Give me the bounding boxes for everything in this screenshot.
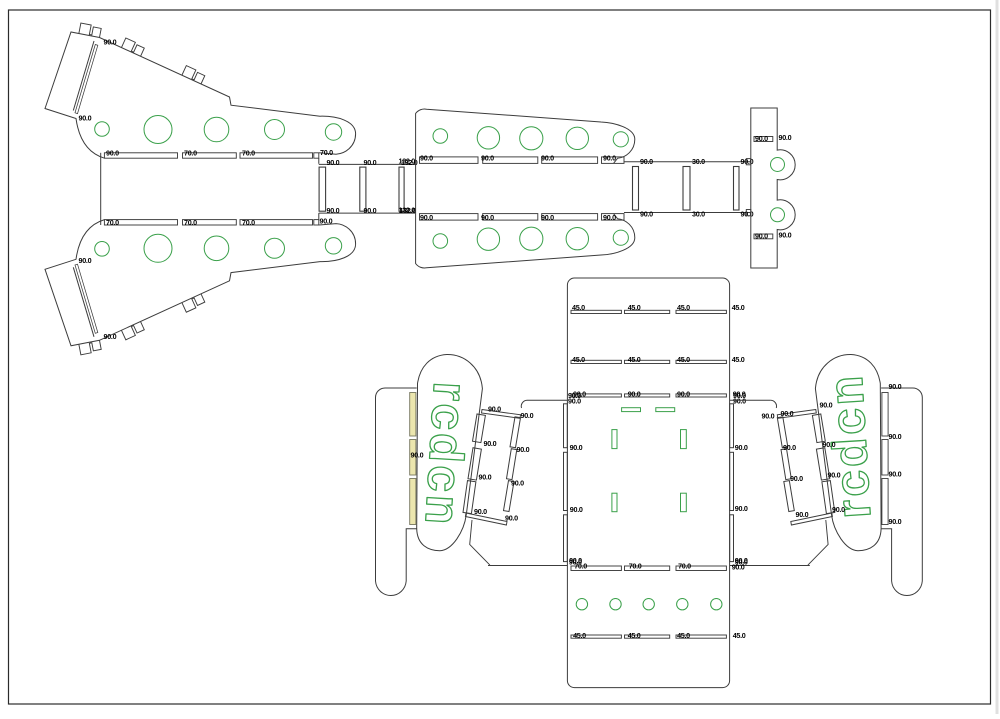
svg-text:90.0: 90.0	[104, 38, 117, 47]
svg-text:90.0: 90.0	[484, 439, 497, 448]
svg-text:70.0: 70.0	[678, 562, 691, 571]
svg-text:90.0: 90.0	[783, 443, 796, 452]
svg-text:rcdcn: rcdcn	[414, 380, 476, 529]
svg-text:90.0: 90.0	[735, 504, 748, 513]
svg-text:70.0: 70.0	[106, 218, 119, 227]
svg-text:45.0: 45.0	[628, 631, 641, 640]
svg-text:45.0: 45.0	[732, 303, 745, 312]
svg-text:132.0: 132.0	[399, 156, 416, 165]
svg-text:45.0: 45.0	[732, 355, 745, 364]
svg-text:90.0: 90.0	[735, 556, 748, 565]
svg-text:90.0: 90.0	[511, 479, 524, 488]
svg-text:90.0: 90.0	[481, 153, 494, 162]
svg-text:90.0: 90.0	[796, 510, 809, 519]
svg-text:90.0: 90.0	[779, 230, 792, 239]
svg-text:90.0: 90.0	[640, 157, 653, 166]
svg-text:70.0: 70.0	[184, 149, 197, 158]
svg-text:90.0: 90.0	[677, 390, 690, 399]
svg-text:70.0: 70.0	[184, 218, 197, 227]
svg-text:90.0: 90.0	[733, 391, 746, 400]
svg-text:90.0: 90.0	[106, 149, 119, 158]
svg-text:90.0: 90.0	[364, 158, 377, 167]
svg-text:90.0: 90.0	[541, 153, 554, 162]
svg-text:90.0: 90.0	[420, 213, 433, 222]
svg-text:90.0: 90.0	[832, 505, 845, 514]
svg-text:45.0: 45.0	[733, 631, 746, 640]
svg-text:90.0: 90.0	[411, 451, 424, 460]
svg-text:90.0: 90.0	[517, 445, 530, 454]
svg-text:70.0: 70.0	[320, 148, 333, 157]
svg-text:45.0: 45.0	[573, 631, 586, 640]
svg-text:90.0: 90.0	[364, 206, 377, 215]
svg-text:90.0: 90.0	[628, 390, 641, 399]
svg-text:70.0: 70.0	[242, 149, 255, 158]
svg-text:30.0: 30.0	[692, 210, 705, 219]
svg-text:90.0: 90.0	[889, 470, 902, 479]
svg-text:90.0: 90.0	[79, 114, 92, 123]
svg-text:45.0: 45.0	[572, 355, 585, 364]
svg-text:90.0: 90.0	[320, 216, 333, 225]
svg-text:90.0: 90.0	[479, 473, 492, 482]
svg-text:45.0: 45.0	[677, 303, 690, 312]
svg-text:90.0: 90.0	[488, 405, 501, 414]
svg-text:90.0: 90.0	[505, 514, 518, 523]
svg-text:90.0: 90.0	[327, 206, 340, 215]
svg-text:90.0: 90.0	[474, 507, 487, 516]
svg-text:90.0: 90.0	[762, 412, 775, 421]
svg-text:90.0: 90.0	[820, 401, 833, 410]
svg-text:90.0: 90.0	[741, 210, 754, 219]
svg-text:90.0: 90.0	[79, 256, 92, 265]
svg-text:30.0: 30.0	[692, 157, 705, 166]
svg-text:90.0: 90.0	[570, 505, 583, 514]
svg-text:90.0: 90.0	[568, 391, 581, 400]
svg-text:45.0: 45.0	[677, 631, 690, 640]
svg-text:90.0: 90.0	[735, 443, 748, 452]
svg-text:90.0: 90.0	[755, 231, 768, 240]
svg-text:90.0: 90.0	[541, 213, 554, 222]
svg-text:90.0: 90.0	[327, 158, 340, 167]
svg-text:90.0: 90.0	[755, 134, 768, 143]
svg-text:45.0: 45.0	[572, 303, 585, 312]
svg-text:90.0: 90.0	[420, 153, 433, 162]
svg-text:90.0: 90.0	[889, 517, 902, 526]
svg-text:90.0: 90.0	[823, 440, 836, 449]
svg-text:90.0: 90.0	[521, 411, 534, 420]
svg-text:90.0: 90.0	[889, 432, 902, 441]
svg-text:45.0: 45.0	[677, 355, 690, 364]
svg-text:90.0: 90.0	[828, 471, 841, 480]
svg-text:45.0: 45.0	[628, 303, 641, 312]
svg-text:45.0: 45.0	[628, 355, 641, 364]
svg-text:70.0: 70.0	[629, 562, 642, 571]
svg-text:90.0: 90.0	[569, 556, 582, 565]
svg-text:70.0: 70.0	[242, 218, 255, 227]
svg-text:90.0: 90.0	[570, 443, 583, 452]
svg-text:90.0: 90.0	[640, 210, 653, 219]
svg-text:90.0: 90.0	[889, 382, 902, 391]
svg-text:90.0: 90.0	[790, 474, 803, 483]
svg-text:90.0: 90.0	[603, 153, 616, 162]
svg-text:90.0: 90.0	[104, 332, 117, 341]
svg-text:90.0: 90.0	[603, 213, 616, 222]
svg-text:90.0: 90.0	[481, 213, 494, 222]
svg-text:90.0: 90.0	[781, 409, 794, 418]
svg-text:90.0: 90.0	[779, 133, 792, 142]
svg-text:132.0: 132.0	[399, 206, 416, 215]
